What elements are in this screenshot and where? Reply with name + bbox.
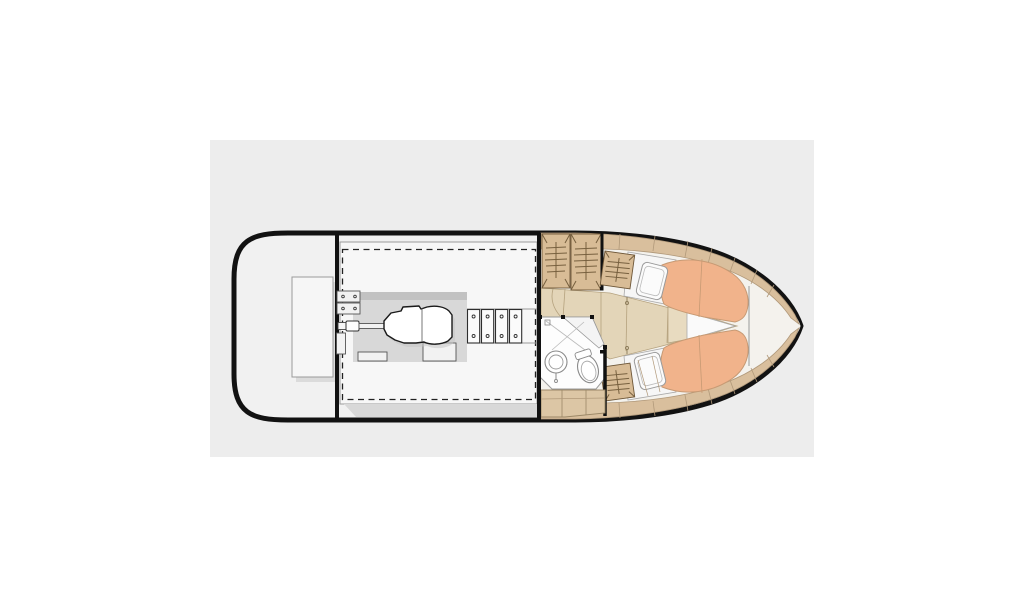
wall-post [590,315,594,319]
locker-2 [571,234,601,290]
wall-post [603,345,607,349]
boat-floorplan-canvas [0,0,1024,600]
engine-room [337,242,539,417]
engine-mount-aft [358,352,387,361]
wall-post [561,315,565,319]
floorplan-svg [0,0,1024,600]
stern-bench-top [292,277,333,377]
engine [384,306,452,344]
stern-bench [292,277,337,382]
locker-3 [600,251,634,289]
engine-room-edge [344,404,537,417]
locker-1 [542,234,570,288]
cabinet-run [541,390,605,417]
wall-post [600,287,604,291]
engine-bed-top [353,292,467,300]
seacock-box [337,333,346,354]
wall-post [600,350,604,354]
